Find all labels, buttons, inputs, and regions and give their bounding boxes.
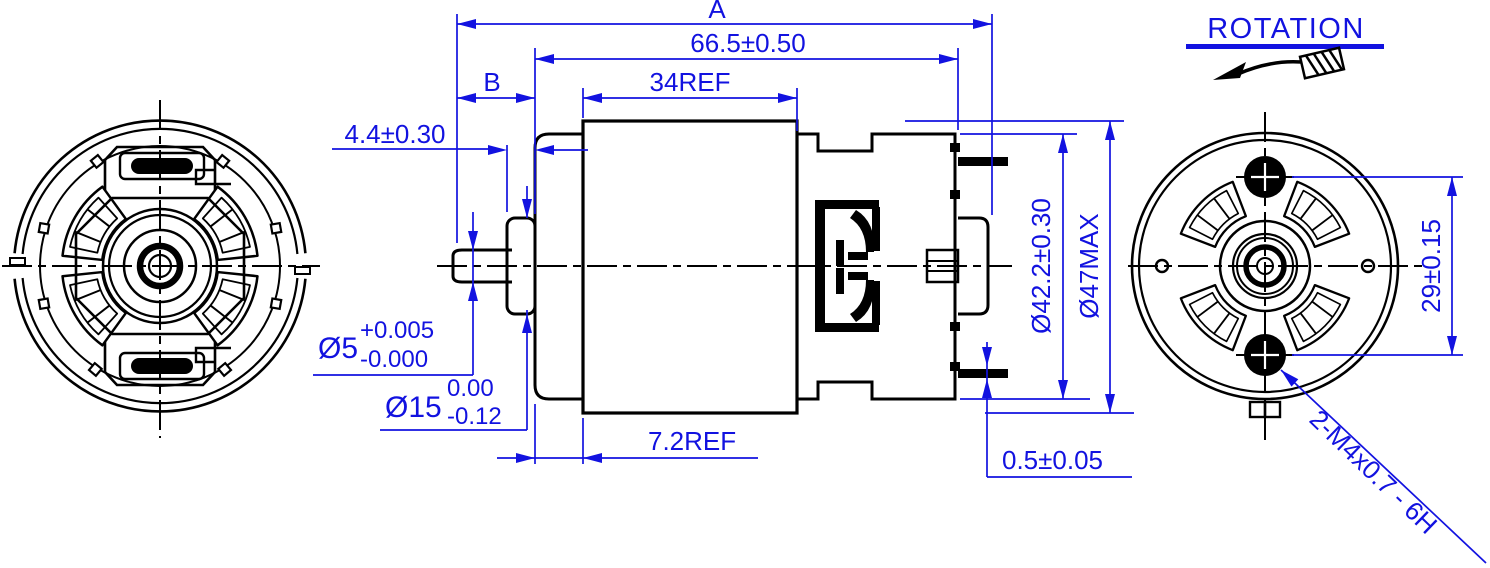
dim-boss-length-label: 4.4±0.30	[344, 119, 445, 149]
rear-terminal-tab	[1250, 402, 1280, 417]
top-magnet-bar	[131, 158, 193, 174]
rotation-note: ROTATION	[1186, 13, 1384, 80]
dim-mount-holes-callout: 2-M4x0.7 - 6H	[1278, 366, 1486, 563]
rotation-label: ROTATION	[1207, 13, 1365, 45]
dim-mount-holes-label: 2-M4x0.7 - 6H	[1304, 404, 1443, 540]
dim-shaft-diameter-label: Ø5	[318, 332, 358, 365]
side-view	[437, 121, 1012, 413]
mount-hole-top	[1236, 156, 1294, 198]
dim-boss-diameter-label: Ø15	[385, 391, 442, 424]
dim-endcap-diameter-label: Ø42.2±0.30	[1026, 198, 1056, 334]
front-brush-bracket-bottom	[105, 342, 231, 385]
left-key-notch	[10, 258, 25, 265]
motor-drawing-page: A 66.5±0.50 B 34REF 4.4±0.30	[0, 0, 1490, 568]
dim-shaft-extension: B	[457, 48, 535, 214]
front-view	[2, 100, 320, 438]
rotation-direction-arrow-icon	[1213, 48, 1344, 80]
motor-drawing: A 66.5±0.50 B 34REF 4.4±0.30	[0, 0, 1490, 568]
bottom-magnet-bar	[131, 358, 193, 374]
dim-boss-diameter-tol-upper: 0.00	[447, 375, 494, 402]
dim-body-diameter-label: Ø47MAX	[1074, 213, 1104, 319]
rear-view	[1128, 112, 1424, 440]
dim-body-length-label: 66.5±0.50	[690, 28, 805, 58]
dim-shaft-diameter-tol-lower: -0.000	[360, 346, 428, 373]
dim-mount-hole-spacing-label: 29±0.15	[1416, 219, 1446, 313]
terminal-top	[958, 157, 1008, 166]
rotation-underline	[1186, 44, 1384, 49]
mount-hole-bottom	[1236, 334, 1294, 376]
dim-shaft-diameter: Ø5 +0.005 -0.000	[313, 212, 478, 375]
right-key-notch	[295, 267, 310, 274]
terminal-bottom	[958, 369, 1008, 378]
dim-shaft-diameter-tol-upper: +0.005	[360, 317, 434, 344]
dim-shaft-extension-label: B	[483, 67, 500, 97]
dim-boss-diameter-tol-lower: -0.12	[447, 403, 502, 430]
dim-flange-length-label: 7.2REF	[648, 426, 736, 456]
dim-overall-length-label: A	[708, 0, 726, 24]
front-brush-bracket-top	[105, 147, 231, 190]
dim-can-length-label: 34REF	[650, 67, 731, 97]
dim-body-length: 66.5±0.50	[535, 28, 958, 130]
dim-terminal-thickness-label: 0.5±0.05	[1002, 445, 1103, 475]
